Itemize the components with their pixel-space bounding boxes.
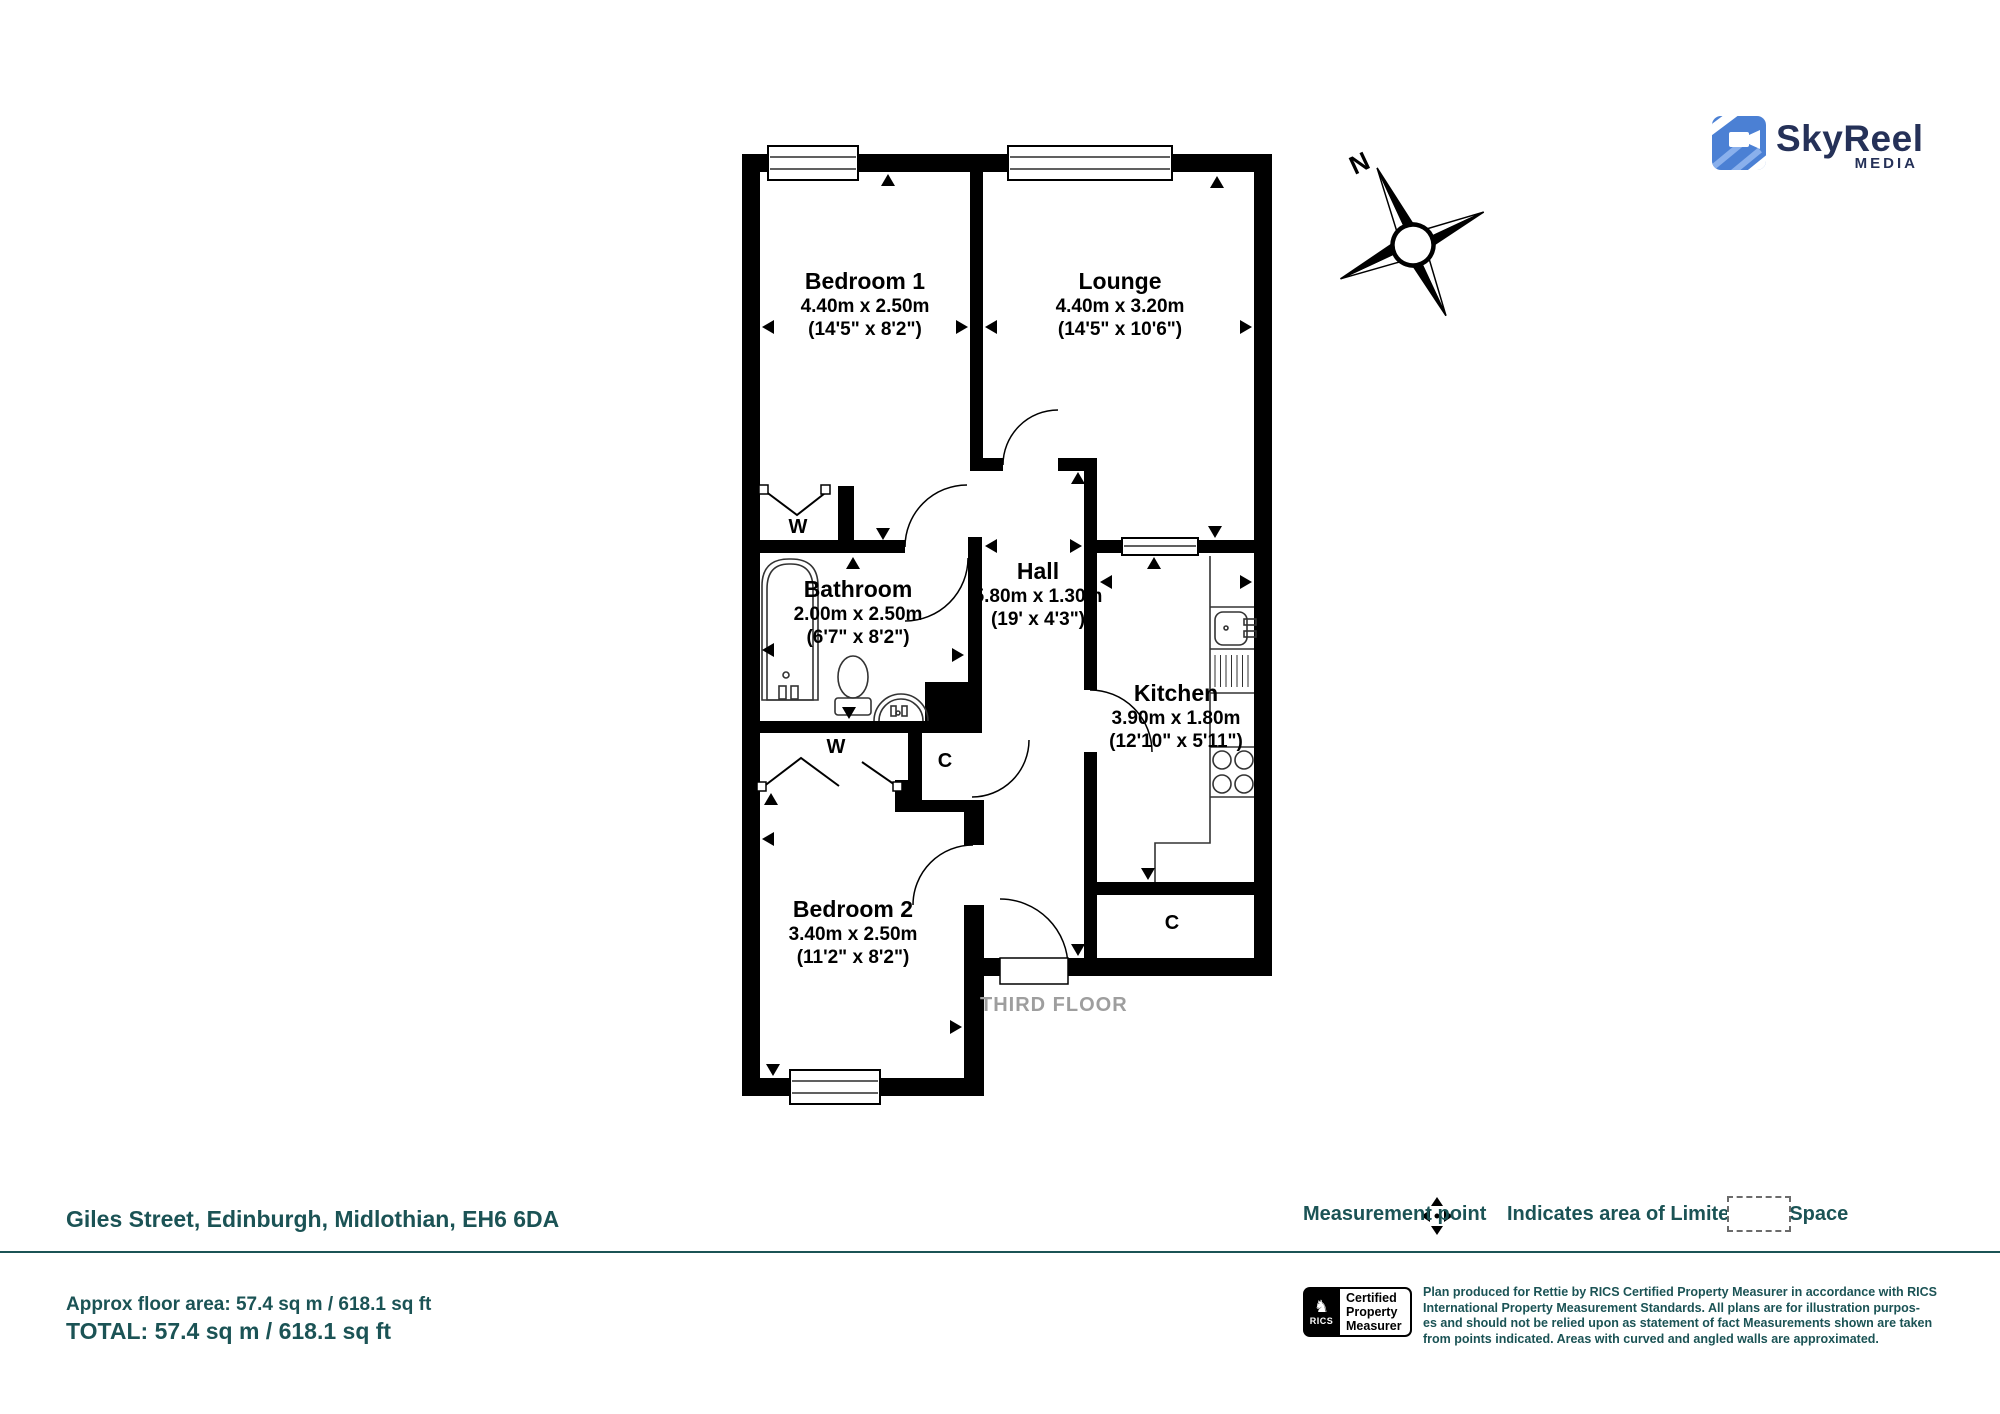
lounge-door-arc [1003,410,1058,465]
bedroom1-label: Bedroom 1 4.40m x 2.50m (14'5" x 8'2") [801,268,930,341]
rics-badge-line: Property [1346,1305,1410,1319]
bedroom2-window [790,1070,880,1104]
bedroom1-name: Bedroom 1 [801,268,930,295]
bedroom1-imperial: (14'5" x 8'2") [801,318,930,341]
rics-badge-line: Measurer [1346,1319,1410,1333]
rics-badge: ♞ RICS Certified Property Measurer [1303,1287,1412,1337]
hall-imperial: (19' x 4'3") [974,608,1103,631]
floor-plan-canvas: N [0,0,2000,1414]
limited-use-sample-box [1727,1196,1791,1232]
brand-tagline: MEDIA [1776,155,1918,172]
bedroom2-label: Bedroom 2 3.40m x 2.50m (11'2" x 8'2") [789,896,918,969]
bedroom1-wardrobe-doors [765,490,829,515]
toilet-cistern-icon [835,698,871,715]
hall-metric: 5.80m x 1.30m [974,585,1103,608]
bedroom2-wardrobe-door-left [763,758,839,787]
disclaimer-line: es and should not be relied upon as stat… [1423,1316,1953,1332]
hob-icon [1213,751,1253,793]
sink-icon [1215,612,1247,645]
rics-badge-line: Certified [1346,1291,1410,1305]
hall-name: Hall [974,558,1103,585]
bathroom-label: Bathroom 2.00m x 2.50m (6'7" x 8'2") [794,576,923,649]
hall-label: Hall 5.80m x 1.30m (19' x 4'3") [974,558,1103,631]
rics-logo: ♞ RICS [1303,1287,1340,1337]
rics-org-label: RICS [1310,1316,1334,1326]
rics-badge-text: Certified Property Measurer [1340,1287,1412,1337]
lounge-window [1008,146,1172,180]
front-door-arc [1000,899,1068,967]
hall-cupboard-label: C [938,750,952,773]
bedroom1-metric: 4.40m x 2.50m [801,295,930,318]
bathroom-name: Bathroom [794,576,923,603]
bedroom2-wardrobe-label: W [827,736,846,759]
bathroom-imperial: (6'7" x 8'2") [794,626,923,649]
toilet-icon [838,656,868,698]
bedroom1-window [768,146,858,180]
total-floor-area: TOTAL: 57.4 sq m / 618.1 sq ft [66,1318,391,1345]
kitchen-name: Kitchen [1109,680,1243,707]
property-address: Giles Street, Edinburgh, Midlothian, EH6… [66,1206,559,1233]
floor-name-label: THIRD FLOOR [980,994,1128,1017]
compass-rose-icon: N [1293,111,1516,350]
floorplan-page: N Bedroom 1 4.40m x 2.50 [0,0,2000,1414]
compass-north-label: N [1344,145,1374,180]
entrance-cupboard-label: C [1165,912,1179,935]
bedroom2-name: Bedroom 2 [789,896,918,923]
disclaimer-text: Plan produced for Rettie by RICS Certifi… [1423,1285,1953,1347]
basin-icon [874,694,928,721]
cupboard-door-arc [972,740,1029,797]
kitchen-internal-window [1122,538,1198,555]
lounge-metric: 4.40m x 3.20m [1056,295,1185,318]
measurement-point-label: Measurement point [1303,1203,1486,1226]
kitchen-metric: 3.90m x 1.80m [1109,707,1243,730]
approx-floor-area: Approx floor area: 57.4 sq m / 618.1 sq … [66,1294,431,1316]
bedroom2-metric: 3.40m x 2.50m [789,923,918,946]
disclaimer-line: International Property Measurement Stand… [1423,1301,1953,1317]
bedroom1-door-arc [905,485,967,547]
lounge-label: Lounge 4.40m x 3.20m (14'5" x 10'6") [1056,268,1185,341]
limited-use-label: Indicates area of Limited Use Space [1507,1203,1848,1226]
disclaimer-line: from points indicated. Areas with curved… [1423,1332,1953,1348]
bathroom-metric: 2.00m x 2.50m [794,603,923,626]
front-door-leaf [1000,958,1068,984]
disclaimer-line: Plan produced for Rettie by RICS Certifi… [1423,1285,1953,1301]
bedroom2-imperial: (11'2" x 8'2") [789,946,918,969]
kitchen-label: Kitchen 3.90m x 1.80m (12'10" x 5'11") [1109,680,1243,753]
lounge-imperial: (14'5" x 10'6") [1056,318,1185,341]
lounge-name: Lounge [1056,268,1185,295]
bedroom2-door-arc [913,845,973,905]
skyreel-logo-icon [1706,110,1774,180]
kitchen-imperial: (12'10" x 5'11") [1109,730,1243,753]
brand-name: SkyReel [1776,118,1924,160]
footer-divider [0,1251,2000,1253]
bedroom1-wardrobe-label: W [789,516,808,539]
rics-lion-icon: ♞ [1314,1298,1329,1316]
